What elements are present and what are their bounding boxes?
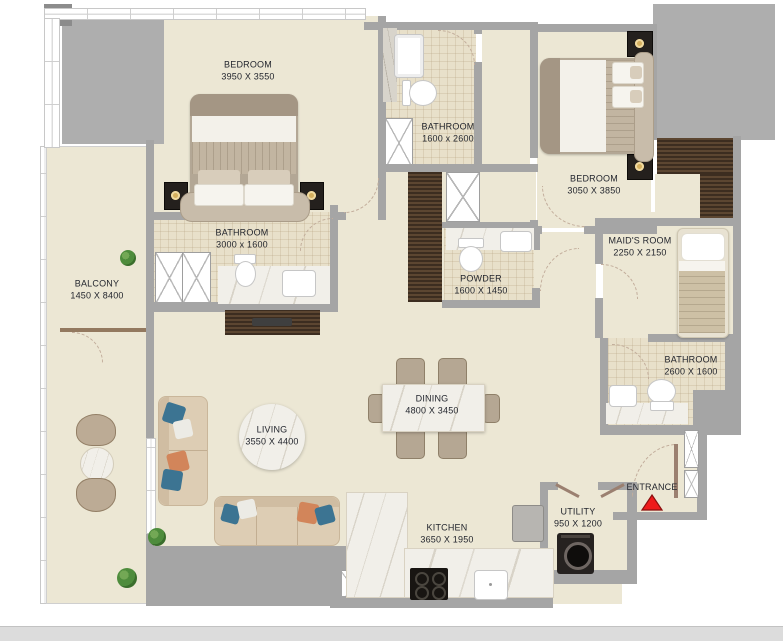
wall: [595, 226, 603, 264]
room-name: BATHROOM: [216, 227, 269, 239]
wall: [474, 62, 482, 172]
structural-block-top-left: [62, 18, 164, 144]
wardrobe-bedroom-2-b: [700, 174, 734, 220]
hall-closet: [446, 172, 480, 222]
room-dims: 3550 X 4400: [245, 436, 298, 448]
room-dims: 4800 X 3450: [405, 405, 458, 417]
room-dims: 3950 X 3550: [221, 71, 274, 83]
toilet-bowl: [459, 246, 483, 272]
window-band-left: [44, 18, 60, 148]
bed-duvet: [560, 60, 606, 152]
room-dims: 3050 X 3850: [567, 185, 620, 197]
bathroom-1-shower: [385, 118, 413, 168]
room-dims: 950 X 1200: [554, 518, 602, 530]
fridge: [512, 505, 544, 542]
wardrobe-bedroom-2-a: [657, 138, 735, 174]
pillow: [630, 90, 642, 103]
structural-block-top-right: [653, 4, 775, 140]
bathroom-2-shower-a: [155, 252, 184, 304]
balcony-chair: [76, 414, 116, 446]
room-dims: 3000 x 1600: [216, 239, 269, 251]
burner: [432, 572, 446, 586]
tv-console-handle: [252, 318, 292, 326]
room-name: BEDROOM: [567, 173, 620, 185]
cushion-white: [172, 418, 193, 439]
room-name: BATHROOM: [664, 354, 717, 366]
entrance-arrow-icon: [641, 494, 663, 511]
window-band-top: [44, 8, 366, 20]
balcony-floor: [46, 146, 149, 604]
cushion-white: [236, 498, 257, 519]
room-name: DINING: [405, 393, 458, 405]
room-label-bedroom-2: BEDROOM 3050 X 3850: [567, 173, 620, 196]
wall: [378, 164, 538, 172]
bed-blanket: [679, 271, 725, 333]
pillow: [681, 233, 725, 261]
room-label-bathroom-2: BATHROOM 3000 x 1600: [216, 227, 269, 250]
floor-plan: BEDROOM 3950 X 3550 BATHROOM 1600 x 2600…: [0, 0, 783, 641]
room-name: MAID'S ROOM: [609, 235, 672, 247]
burner: [432, 586, 446, 600]
cushion-blue: [161, 469, 184, 492]
room-name: BATHROOM: [422, 121, 475, 133]
room-label-dining: DINING 4800 X 3450: [405, 393, 458, 416]
room-name: UTILITY: [554, 506, 602, 518]
stove: [410, 568, 448, 600]
drain: [489, 583, 492, 586]
room-label-entrance: ENTRANCE: [626, 482, 677, 494]
pillow: [194, 184, 244, 206]
balcony-table: [80, 447, 114, 481]
balcony-chair: [76, 478, 116, 512]
room-dims: 3650 X 1950: [420, 534, 473, 546]
entrance-closet-b: [684, 470, 699, 498]
tv-console: [225, 310, 320, 335]
burner: [415, 586, 429, 600]
dining-chair: [438, 428, 467, 459]
room-name: BALCONY: [70, 278, 123, 290]
wall: [474, 26, 482, 34]
room-label-powder: POWDER 1600 X 1450: [454, 273, 507, 296]
room-label-balcony: BALCONY 1450 X 8400: [70, 278, 123, 301]
plant: [148, 528, 166, 546]
bathtub: [394, 34, 424, 78]
wall: [537, 226, 542, 234]
room-label-kitchen: KITCHEN 3650 X 1950: [420, 522, 473, 545]
room-dims: 2250 X 2150: [609, 247, 672, 259]
room-label-bathroom-3: BATHROOM 2600 X 1600: [664, 354, 717, 377]
bed-single: [677, 228, 729, 338]
pillow: [630, 66, 642, 79]
room-name: LIVING: [245, 424, 298, 436]
room-dims: 1450 X 8400: [70, 290, 123, 302]
room-label-utility: UTILITY 950 X 1200: [554, 506, 602, 529]
structural-block-bottom: [148, 546, 346, 606]
room-dims: 1600 x 2600: [422, 133, 475, 145]
wall: [600, 425, 697, 435]
washer-door: [564, 542, 592, 570]
room-dims: 1600 X 1450: [454, 285, 507, 297]
room-name: KITCHEN: [420, 522, 473, 534]
bathroom-3-sink: [609, 385, 637, 407]
wall: [725, 342, 733, 425]
hall-top-floor: [482, 26, 530, 172]
sofa-seam: [169, 450, 207, 451]
bathroom-2-sink: [282, 270, 316, 297]
burner: [415, 572, 429, 586]
kitchen-sink: [474, 570, 508, 600]
balcony-slider-door: [146, 438, 156, 534]
entrance-closet-a: [684, 430, 699, 468]
room-dims: 2600 X 1600: [664, 366, 717, 378]
bed-foot: [190, 94, 298, 116]
room-label-living: LIVING 3550 X 4400: [245, 424, 298, 447]
wardrobe-hall: [408, 172, 442, 302]
room-name: POWDER: [454, 273, 507, 285]
toilet-tank: [650, 401, 674, 411]
room-label-bedroom-1: BEDROOM 3950 X 3550: [221, 59, 274, 82]
wall: [530, 26, 538, 158]
plant: [117, 568, 137, 588]
room-label-maids-room: MAID'S ROOM 2250 X 2150: [609, 235, 672, 258]
wall: [595, 298, 603, 338]
wall: [330, 546, 342, 602]
wall: [442, 300, 540, 308]
washing-machine: [557, 533, 594, 574]
bed-duvet: [192, 116, 296, 142]
room-name: BEDROOM: [221, 59, 274, 71]
plant: [120, 250, 136, 266]
pillow: [244, 184, 294, 206]
room-label-bathroom-1: BATHROOM 1600 x 2600: [422, 121, 475, 144]
bathroom-2-shower-b: [182, 252, 211, 304]
wall-right-outer: [733, 136, 741, 394]
bed-fold: [679, 261, 725, 271]
room-name: ENTRANCE: [626, 482, 677, 494]
kitchen-island: [346, 492, 408, 598]
wall: [595, 218, 740, 226]
nook-floor: [655, 174, 701, 220]
dining-chair: [396, 428, 425, 459]
toilet-bowl: [235, 261, 256, 287]
washer-panel: [561, 535, 590, 538]
toilet-bowl: [409, 80, 437, 106]
page-edge-bar: [0, 626, 783, 641]
bed-foot: [540, 58, 560, 154]
powder-sink: [500, 231, 532, 252]
